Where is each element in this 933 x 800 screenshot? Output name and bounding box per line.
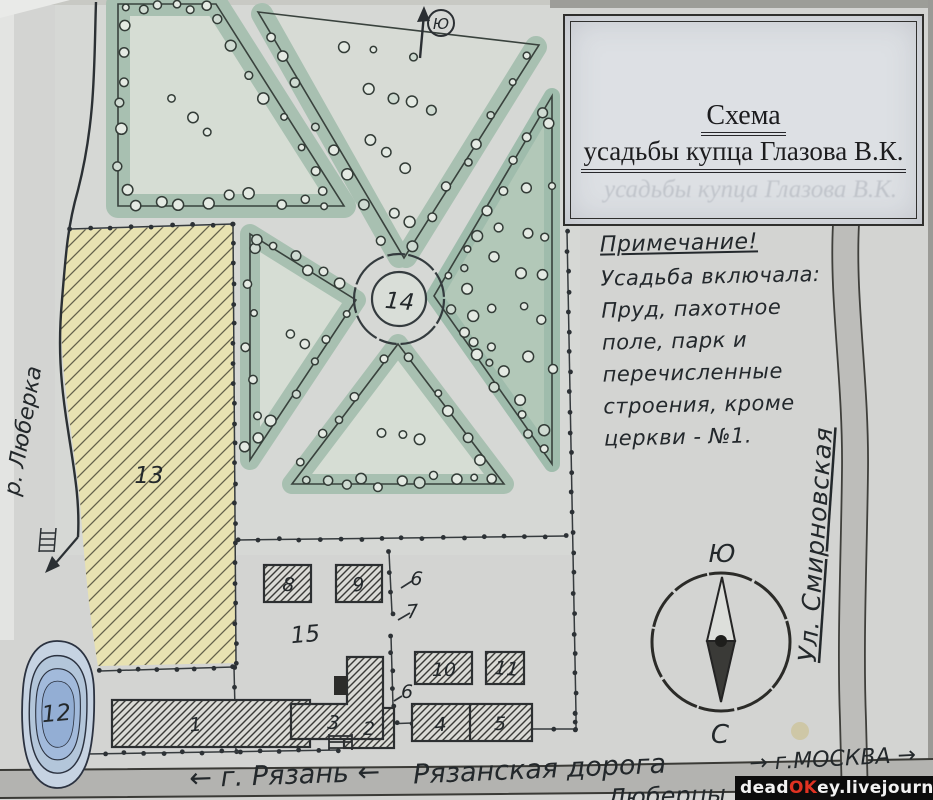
tree-icon bbox=[300, 339, 309, 348]
tree-icon bbox=[523, 52, 530, 59]
tree-icon bbox=[120, 78, 129, 87]
tree-icon bbox=[303, 265, 313, 275]
tree-icon bbox=[390, 208, 400, 218]
tree-icon bbox=[321, 203, 328, 210]
tree-icon bbox=[488, 343, 496, 351]
fence-post-dot bbox=[97, 668, 102, 673]
tree-icon bbox=[549, 183, 556, 190]
fence-post-dot bbox=[316, 748, 321, 753]
fence-post-dot bbox=[572, 570, 577, 575]
fence-post-dot bbox=[387, 570, 392, 575]
tree-icon bbox=[442, 182, 451, 191]
fence-post-dot bbox=[231, 361, 236, 366]
tree-icon bbox=[463, 433, 472, 442]
fence-post-dot bbox=[420, 536, 425, 541]
tree-icon bbox=[487, 112, 494, 119]
fence-post-dot bbox=[388, 590, 393, 595]
tree-icon bbox=[549, 365, 558, 374]
tree-icon bbox=[494, 223, 503, 232]
tree-icon bbox=[241, 343, 250, 352]
fence-post-dot bbox=[573, 720, 578, 725]
tree-icon bbox=[319, 429, 327, 437]
fence-post-dot bbox=[258, 749, 263, 754]
tree-icon bbox=[334, 278, 344, 288]
fence-post-dot bbox=[231, 341, 236, 346]
tree-icon bbox=[319, 267, 328, 276]
fence-post-dot bbox=[569, 470, 574, 475]
tree-icon bbox=[518, 411, 526, 419]
tree-icon bbox=[270, 242, 277, 249]
fence-post-dot bbox=[103, 752, 108, 757]
tree-icon bbox=[240, 442, 250, 452]
tree-icon bbox=[522, 183, 532, 193]
fence-post-dot bbox=[117, 668, 122, 673]
tree-icon bbox=[489, 382, 499, 392]
tree-icon bbox=[462, 284, 473, 295]
fence-post-dot bbox=[233, 601, 238, 606]
tree-icon bbox=[509, 79, 516, 86]
tree-icon bbox=[116, 123, 127, 134]
tree-icon bbox=[249, 375, 257, 383]
tree-icon bbox=[301, 195, 309, 203]
fence-post-dot bbox=[296, 538, 301, 543]
building-3-stairs bbox=[329, 734, 352, 750]
fence-post-dot bbox=[386, 549, 391, 554]
tree-icon bbox=[278, 51, 288, 61]
tree-icon bbox=[188, 112, 198, 122]
tree-icon bbox=[343, 311, 350, 318]
tree-icon bbox=[252, 235, 262, 245]
scanned-estate-map: Ю С Ю р. Люберка Ул. Смирновская ← г. Ря… bbox=[0, 0, 933, 800]
tree-icon bbox=[435, 390, 442, 397]
tree-icon bbox=[243, 188, 254, 199]
tree-icon bbox=[523, 351, 534, 362]
fence-post-dot bbox=[234, 641, 239, 646]
fence-post-dot bbox=[573, 711, 578, 716]
tree-icon bbox=[339, 42, 350, 53]
tree-icon bbox=[538, 108, 548, 118]
map-subtitle: усадьбы купца Глазова В.К. bbox=[581, 136, 905, 173]
fence-post-dot bbox=[192, 667, 197, 672]
fence-post-dot bbox=[391, 612, 396, 617]
fence-post-dot bbox=[571, 591, 576, 596]
note-lines: Усадьба включала:Пруд, пахотноеполе, пар… bbox=[600, 261, 854, 450]
tree-icon bbox=[539, 425, 550, 436]
tree-icon bbox=[303, 476, 310, 483]
watermark-part: ey bbox=[817, 778, 839, 798]
fence-post-dot bbox=[567, 389, 572, 394]
fence-post-dot bbox=[567, 290, 572, 295]
watermark-part: OK bbox=[789, 778, 817, 798]
tree-icon bbox=[292, 390, 300, 398]
tree-icon bbox=[119, 48, 128, 57]
tree-icon bbox=[472, 231, 483, 242]
fence-post-dot bbox=[233, 521, 238, 526]
tree-icon bbox=[225, 40, 236, 51]
tree-icon bbox=[488, 304, 496, 312]
fence-post-dot bbox=[232, 282, 237, 287]
tree-icon bbox=[469, 338, 478, 347]
fence-post-dot bbox=[232, 501, 237, 506]
tree-icon bbox=[430, 471, 438, 479]
note-line: церкви - №1. bbox=[604, 421, 854, 450]
note-line: строения, кроме bbox=[603, 389, 853, 418]
fence-post-dot bbox=[543, 535, 548, 540]
tree-icon bbox=[482, 206, 492, 216]
fence-post-dot bbox=[399, 535, 404, 540]
tree-icon bbox=[312, 358, 319, 365]
fence-post-dot bbox=[67, 227, 72, 232]
fence-post-dot bbox=[170, 223, 175, 228]
fence-post-dot bbox=[571, 551, 576, 556]
tree-icon bbox=[376, 236, 385, 245]
title-box: Схема усадьбы купца Глазова В.К. усадьбы… bbox=[563, 14, 924, 226]
tree-icon bbox=[524, 430, 532, 438]
fence-post-dot bbox=[570, 510, 575, 515]
fence-post-dot bbox=[233, 581, 238, 586]
fence-post-dot bbox=[231, 381, 236, 386]
fence-post-dot bbox=[190, 222, 195, 227]
tree-icon bbox=[173, 199, 184, 210]
tree-icon bbox=[541, 233, 549, 241]
fence-post-dot bbox=[482, 534, 487, 539]
map-number-label: 6 bbox=[401, 681, 413, 703]
tree-icon bbox=[258, 93, 269, 104]
tree-icon bbox=[115, 98, 124, 107]
fence-post-dot bbox=[573, 651, 578, 656]
fence-post-dot bbox=[564, 533, 569, 538]
compass-south-label: Ю bbox=[709, 539, 736, 568]
map-number-label: 9 bbox=[351, 574, 365, 597]
tree-icon bbox=[400, 163, 410, 173]
tree-icon bbox=[388, 93, 399, 104]
map-number-label: 14 bbox=[384, 288, 415, 316]
map-number-label: 13 bbox=[134, 463, 163, 489]
map-number-label: 15 bbox=[290, 621, 321, 649]
tree-icon bbox=[322, 336, 330, 344]
fence-post-dot bbox=[569, 450, 574, 455]
tree-icon bbox=[342, 480, 351, 489]
tree-icon bbox=[406, 96, 417, 107]
tree-icon bbox=[113, 162, 122, 171]
map-number-label: 8 bbox=[282, 574, 296, 597]
fence-post-dot bbox=[231, 302, 236, 307]
fence-post-dot bbox=[231, 261, 236, 266]
tree-icon bbox=[460, 328, 470, 338]
fence-post-dot bbox=[296, 748, 301, 753]
tree-icon bbox=[286, 330, 294, 338]
tree-icon bbox=[329, 145, 339, 155]
map-number-label: 11 bbox=[494, 657, 520, 681]
tree-icon bbox=[168, 95, 175, 102]
tree-icon bbox=[123, 4, 130, 11]
tree-icon bbox=[516, 268, 527, 279]
tree-icon bbox=[486, 359, 493, 366]
title-ghost-text: усадьбы купца Глазова В.К. bbox=[601, 176, 900, 204]
fence-post-dot bbox=[232, 460, 237, 465]
tree-icon bbox=[157, 197, 168, 208]
tree-icon bbox=[475, 455, 485, 465]
map-number-label: 1 bbox=[188, 714, 202, 737]
fence-post-dot bbox=[234, 661, 239, 666]
tree-icon bbox=[399, 431, 407, 439]
tree-icon bbox=[186, 6, 194, 14]
fence-post-dot bbox=[232, 685, 237, 690]
tree-icon bbox=[213, 15, 222, 24]
fence-post-dot bbox=[232, 665, 237, 670]
fence-post-dot bbox=[336, 748, 341, 753]
tree-icon bbox=[324, 476, 333, 485]
fence-post-dot bbox=[462, 536, 467, 541]
tree-icon bbox=[537, 270, 547, 280]
fence-post-dot bbox=[129, 224, 134, 229]
fence-post-dot bbox=[441, 535, 446, 540]
fence-post-dot bbox=[231, 241, 236, 246]
tree-icon bbox=[397, 476, 407, 486]
note-line: поле, парк и bbox=[602, 325, 852, 354]
title-box-inner: Схема усадьбы купца Глазова В.К. усадьбы… bbox=[570, 21, 917, 219]
fence-post-dot bbox=[233, 482, 238, 487]
tree-icon bbox=[319, 187, 327, 195]
fence-post-dot bbox=[277, 536, 282, 541]
fence-post-dot bbox=[88, 226, 93, 231]
tree-icon bbox=[267, 33, 275, 41]
fence-post-dot bbox=[256, 538, 261, 543]
tree-icon bbox=[471, 139, 481, 149]
tree-icon bbox=[428, 213, 437, 222]
tree-icon bbox=[414, 434, 425, 445]
fence-post-dot bbox=[568, 410, 573, 415]
tree-icon bbox=[523, 229, 533, 239]
fence-post-dot bbox=[569, 490, 574, 495]
note-line: Усадьба включала: bbox=[600, 261, 850, 290]
tree-icon bbox=[312, 123, 320, 131]
map-number-label: 10 bbox=[432, 659, 456, 681]
tree-icon bbox=[311, 167, 320, 176]
tree-icon bbox=[245, 72, 253, 80]
tree-icon bbox=[122, 185, 133, 196]
tree-icon bbox=[461, 265, 468, 272]
tree-icon bbox=[173, 0, 180, 7]
fence-post-dot bbox=[149, 225, 154, 230]
fence-post-dot bbox=[232, 621, 237, 626]
tree-icon bbox=[243, 280, 251, 288]
tree-icon bbox=[464, 246, 471, 253]
note-line: Пруд, пахотное bbox=[601, 293, 851, 322]
map-number-label: 5 bbox=[494, 713, 506, 735]
tree-icon bbox=[335, 416, 342, 423]
tree-icon bbox=[414, 477, 425, 488]
fence-post-dot bbox=[380, 536, 385, 541]
map-number-label: 3 bbox=[327, 712, 341, 735]
fence-post-dot bbox=[567, 349, 572, 354]
fence-post-dot bbox=[318, 537, 323, 542]
fence-post-dot bbox=[567, 330, 572, 335]
fence-post-dot bbox=[568, 431, 573, 436]
fence-post-dot bbox=[232, 422, 237, 427]
fence-post-dot bbox=[211, 223, 216, 228]
tree-icon bbox=[471, 349, 482, 360]
fence-post-dot bbox=[360, 537, 365, 542]
watermark-part: .livejournal bbox=[839, 778, 933, 798]
fence-post-dot bbox=[388, 650, 393, 655]
map-title-row: Схема bbox=[571, 100, 916, 132]
fence-post-dot bbox=[572, 632, 577, 637]
fence-post-dot bbox=[236, 537, 241, 542]
fence-post-dot bbox=[566, 310, 571, 315]
tree-icon bbox=[427, 105, 437, 115]
tree-icon bbox=[254, 412, 262, 420]
tree-icon bbox=[374, 483, 383, 492]
fence-post-dot bbox=[200, 751, 205, 756]
tree-icon bbox=[465, 159, 472, 166]
paper-stain bbox=[791, 722, 809, 740]
tree-icon bbox=[203, 198, 214, 209]
fence-post-dot bbox=[574, 691, 579, 696]
fence-post-dot bbox=[339, 537, 344, 542]
fence-post-dot bbox=[571, 530, 576, 535]
tree-icon bbox=[404, 353, 412, 361]
fence-post-dot bbox=[233, 441, 238, 446]
tree-icon bbox=[265, 415, 276, 426]
building-3-annex bbox=[334, 676, 347, 695]
watermark: deadOKey.livejournal.com bbox=[735, 776, 933, 800]
map-title: Схема bbox=[701, 100, 785, 136]
fence-post-dot bbox=[180, 749, 185, 754]
tree-icon bbox=[410, 53, 418, 61]
fence-post-dot bbox=[573, 727, 578, 732]
tree-icon bbox=[509, 156, 517, 164]
tree-icon bbox=[380, 355, 388, 363]
tree-icon bbox=[277, 200, 286, 209]
fence-post-dot bbox=[219, 749, 224, 754]
note-heading: Примечание! bbox=[600, 227, 850, 257]
tree-icon bbox=[253, 433, 263, 443]
map-subtitle-row: усадьбы купца Глазова В.К. bbox=[571, 136, 916, 167]
tree-icon bbox=[359, 200, 369, 210]
fence-post-dot bbox=[388, 634, 393, 639]
note: Примечание! Усадьба включала:Пруд, пахот… bbox=[600, 227, 855, 458]
tree-icon bbox=[224, 190, 234, 200]
map-number-label: 7 bbox=[405, 601, 419, 624]
tree-icon bbox=[443, 406, 454, 417]
fence-post-dot bbox=[233, 560, 238, 565]
fence-post-dot bbox=[232, 401, 237, 406]
tree-icon bbox=[365, 135, 375, 145]
tree-icon bbox=[203, 128, 211, 136]
tree-icon bbox=[297, 458, 304, 465]
tree-icon bbox=[356, 473, 366, 483]
fence-post-dot bbox=[277, 749, 282, 754]
map-number-label: 2 bbox=[363, 718, 375, 740]
fence-post-dot bbox=[566, 269, 571, 274]
north-arrow-label: Ю bbox=[433, 15, 449, 33]
fence-post-dot bbox=[175, 667, 180, 672]
fence-post-dot bbox=[565, 229, 570, 234]
fence-post-dot bbox=[572, 611, 577, 616]
map-number-label: 4 bbox=[433, 714, 447, 737]
fence-post-dot bbox=[568, 370, 573, 375]
fence-post-dot bbox=[565, 249, 570, 254]
tree-icon bbox=[202, 1, 211, 10]
fence-post-dot bbox=[122, 750, 127, 755]
tree-icon bbox=[404, 216, 415, 227]
fence-post-dot bbox=[108, 226, 113, 231]
fence-post-dot bbox=[238, 750, 243, 755]
tree-icon bbox=[499, 187, 508, 196]
fence-post-dot bbox=[395, 720, 400, 725]
fence-post-dot bbox=[390, 668, 395, 673]
tree-icon bbox=[291, 251, 301, 261]
tree-icon bbox=[370, 46, 376, 52]
tree-icon bbox=[382, 148, 391, 157]
tree-icon bbox=[468, 310, 479, 321]
tree-icon bbox=[471, 474, 478, 481]
building-4-5 bbox=[412, 704, 532, 741]
fence-post-dot bbox=[212, 666, 217, 671]
tree-icon bbox=[342, 169, 353, 180]
tree-icon bbox=[445, 273, 451, 279]
fence-post-dot bbox=[573, 670, 578, 675]
tree-icon bbox=[487, 474, 496, 483]
fence-post-dot bbox=[390, 686, 395, 691]
tree-icon bbox=[350, 393, 358, 401]
tree-icon bbox=[120, 20, 130, 30]
tree-icon bbox=[140, 5, 149, 14]
fence-post-dot bbox=[551, 727, 556, 732]
watermark-part: dead bbox=[740, 778, 789, 798]
fence-post-dot bbox=[502, 534, 507, 539]
tree-icon bbox=[447, 305, 456, 314]
tree-icon bbox=[153, 1, 161, 9]
tree-icon bbox=[522, 133, 531, 142]
tree-icon bbox=[544, 118, 554, 128]
fence-post-dot bbox=[154, 667, 159, 672]
tree-icon bbox=[407, 241, 418, 252]
tree-icon bbox=[298, 144, 304, 150]
map-number-label: 12 bbox=[41, 700, 72, 728]
building-1 bbox=[112, 700, 310, 747]
tree-icon bbox=[281, 114, 288, 121]
tree-icon bbox=[377, 429, 386, 438]
fence-post-dot bbox=[232, 321, 237, 326]
fence-post-dot bbox=[141, 751, 146, 756]
fence-post-dot bbox=[162, 751, 167, 756]
tree-icon bbox=[521, 303, 528, 310]
tree-icon bbox=[498, 366, 509, 377]
compass-north-label: С bbox=[711, 720, 730, 750]
tree-icon bbox=[540, 445, 548, 453]
fence-post-dot bbox=[231, 222, 236, 227]
tree-icon bbox=[290, 78, 299, 87]
map-number-label: 6 bbox=[410, 568, 424, 591]
tree-icon bbox=[452, 474, 462, 484]
tree-icon bbox=[363, 84, 374, 95]
tree-icon bbox=[251, 310, 258, 317]
fence-post-dot bbox=[136, 667, 141, 672]
note-line: перечисленные bbox=[602, 357, 852, 386]
fence-post-dot bbox=[522, 534, 527, 539]
tree-icon bbox=[537, 315, 546, 324]
settlement-label: Люберцы bbox=[606, 780, 726, 800]
tree-icon bbox=[489, 252, 499, 262]
tree-icon bbox=[131, 201, 141, 211]
tree-icon bbox=[515, 395, 526, 406]
